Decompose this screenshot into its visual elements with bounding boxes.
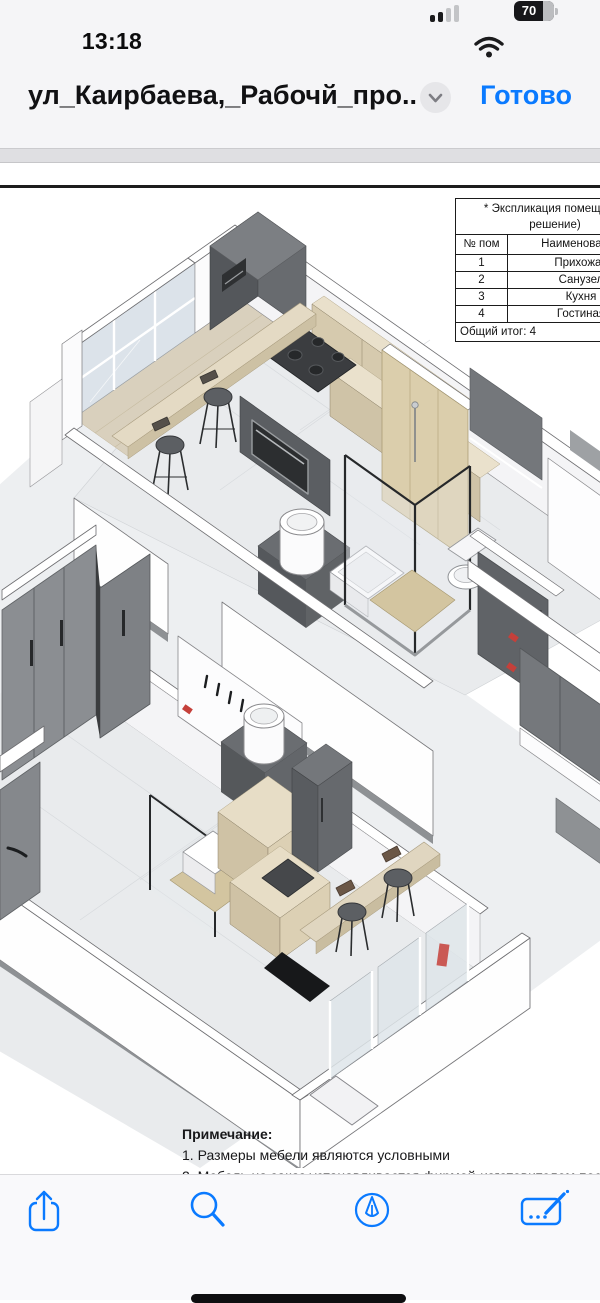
share-icon[interactable] — [26, 1189, 62, 1235]
status-bar: 13:18 70 — [0, 0, 600, 62]
fridge — [292, 744, 352, 872]
table-row: 2 Санузел — [456, 272, 600, 289]
legend-footer: Общий итог: 4 — [456, 323, 600, 342]
markup-pen-icon[interactable] — [352, 1189, 392, 1231]
floor-plan-drawing — [0, 0, 600, 1168]
window-corner-pillar — [62, 330, 82, 440]
bottom-toolbar — [0, 1174, 600, 1300]
search-icon[interactable] — [188, 1189, 228, 1231]
clock: 13:18 — [62, 28, 162, 55]
legend-col-name: Наименование — [508, 235, 600, 255]
note-line: 1. Размеры мебели являются условными — [182, 1145, 600, 1166]
page-separator — [0, 148, 600, 163]
legend-title: * Экспликация помещений решение) — [456, 199, 600, 235]
signature-icon[interactable] — [518, 1189, 570, 1231]
title-menu-button[interactable] — [420, 82, 451, 113]
sheet-top-rule — [0, 185, 600, 188]
wifi-icon — [474, 36, 504, 58]
battery-icon: 70 — [514, 1, 554, 21]
title-bar: ул_Каирбаева,_Рабочй_про... Готово — [0, 62, 600, 148]
note-heading: Примечание: — [182, 1124, 600, 1145]
home-indicator[interactable] — [191, 1294, 406, 1303]
top-chrome: 13:18 70 ул_Каирбаева,_Рабочй_про... Гот… — [0, 0, 600, 148]
table-row: 4 Гостиная — [456, 306, 600, 323]
table-row: 3 Кухня — [456, 289, 600, 306]
document-title: ул_Каирбаева,_Рабочй_про... — [28, 80, 418, 111]
room-legend-table: * Экспликация помещений решение) № пом Н… — [455, 198, 600, 342]
cellular-signal-icon — [430, 4, 464, 22]
done-button[interactable]: Готово — [480, 80, 572, 111]
chevron-down-icon — [420, 82, 451, 113]
legend-col-num: № пом — [456, 235, 508, 255]
table-row: 1 Прихожая — [456, 255, 600, 272]
battery-tip — [555, 8, 558, 15]
battery-percent: 70 — [514, 1, 544, 21]
